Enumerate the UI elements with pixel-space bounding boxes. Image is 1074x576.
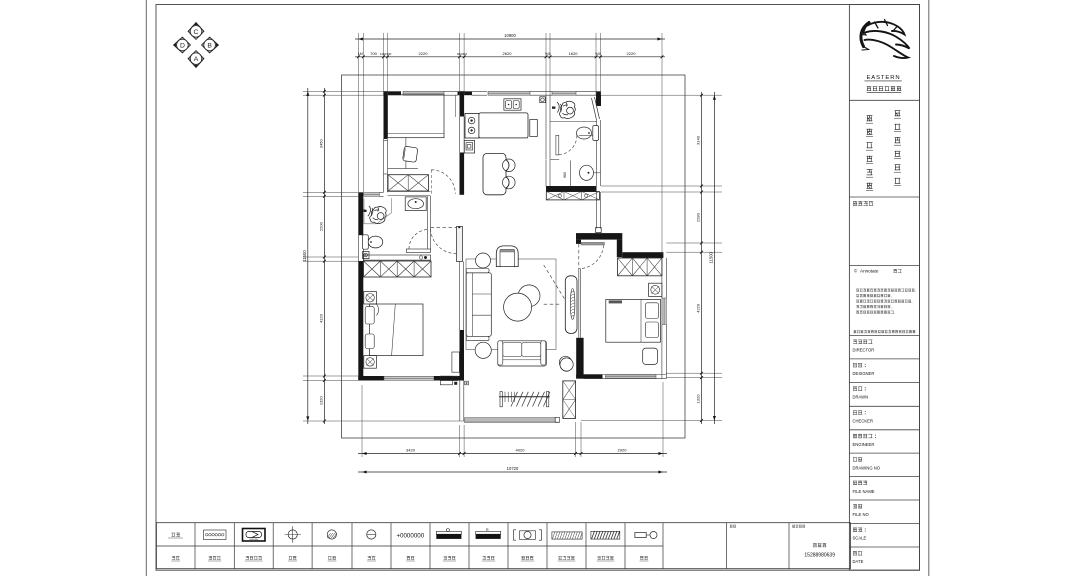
svg-text:4220: 4220 (696, 303, 701, 313)
svg-text:900300: 900300 (457, 52, 467, 56)
svg-text:FILE NAME: FILE NAME (853, 489, 875, 494)
svg-text:,: , (891, 294, 892, 298)
svg-text:1460300: 1460300 (380, 52, 392, 56)
svg-text:15288980639: 15288980639 (804, 553, 835, 559)
svg-text:11500: 11500 (709, 251, 714, 263)
svg-text:2920: 2920 (618, 448, 628, 453)
svg-text:EASTERN: EASTERN (866, 75, 900, 81)
svg-text:700: 700 (370, 51, 377, 56)
svg-text:4020: 4020 (516, 448, 526, 453)
svg-text:3450: 3450 (319, 138, 324, 148)
svg-text:2280: 2280 (696, 212, 701, 222)
svg-text:2220: 2220 (419, 51, 429, 56)
svg-text:940: 940 (595, 52, 601, 56)
svg-text:B: B (207, 42, 212, 49)
svg-text:Annotate: Annotate (860, 269, 879, 274)
svg-text:SCALE: SCALE (853, 536, 867, 541)
svg-text:DATE: DATE (853, 559, 864, 564)
svg-text:980: 980 (563, 172, 567, 178)
svg-text:DIRECTOR: DIRECTOR (853, 348, 875, 353)
svg-text:1620: 1620 (569, 51, 579, 56)
svg-text:CHECKER: CHECKER (853, 419, 873, 424)
svg-text:00000000: 00000000 (249, 539, 259, 541)
svg-text:2200: 2200 (319, 221, 324, 231)
svg-text:,: , (891, 305, 892, 309)
svg-text:4120: 4120 (319, 313, 324, 323)
svg-text:,: , (912, 300, 913, 304)
svg-text:DESIGNER: DESIGNER (853, 371, 875, 376)
svg-text:DRAWN: DRAWN (853, 395, 869, 400)
svg-text:2620: 2620 (503, 51, 513, 56)
svg-text:3420: 3420 (406, 448, 416, 453)
svg-text:1320: 1320 (696, 394, 701, 404)
svg-text:10720: 10720 (507, 466, 519, 471)
svg-text:FILE NO: FILE NO (853, 512, 870, 517)
svg-text:+0000000: +0000000 (396, 533, 424, 540)
svg-text:2220: 2220 (627, 51, 637, 56)
svg-text:D: D (180, 42, 185, 49)
svg-text:C: C (194, 29, 199, 36)
svg-text:140: 140 (358, 52, 364, 56)
svg-text:.: . (894, 311, 895, 315)
svg-text:,: , (915, 289, 916, 293)
svg-text:ENGINEER: ENGINEER (853, 442, 875, 447)
svg-text:A: A (194, 56, 199, 63)
svg-text:DRAWING NO: DRAWING NO (853, 465, 881, 470)
svg-text:10900: 10900 (504, 33, 516, 38)
svg-text:3140: 3140 (696, 135, 701, 145)
svg-text:940: 940 (545, 52, 551, 56)
svg-text:R: R (486, 528, 489, 532)
svg-text:11500: 11500 (302, 250, 307, 262)
svg-text:1320: 1320 (319, 395, 324, 405)
